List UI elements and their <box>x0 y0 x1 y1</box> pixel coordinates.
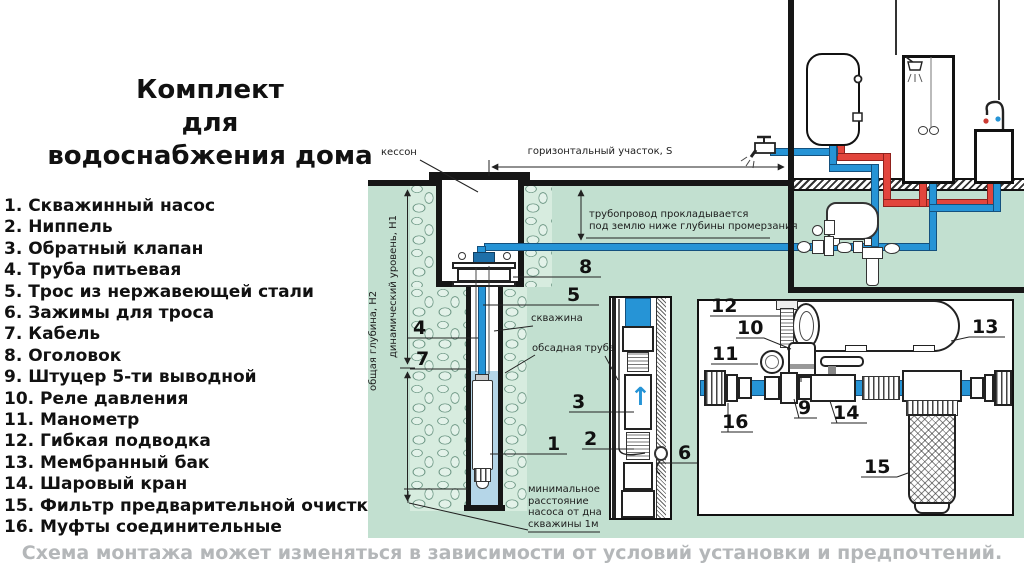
tank-foot <box>913 345 935 352</box>
sink-cabinet <box>974 129 1014 184</box>
legend-item: 1. Скважинный насос <box>4 196 380 217</box>
horizontal-section-label: горизонтальный участок, S <box>505 146 695 158</box>
legend-item: 14. Шаровый кран <box>4 474 380 495</box>
callout-8: 8 <box>579 258 592 276</box>
legend-item: 5. Трос из нержавеющей стали <box>4 282 380 303</box>
legend-item: 8. Оголовок <box>4 346 380 367</box>
callout-1: 1 <box>547 435 560 453</box>
caisson-lid <box>429 172 530 180</box>
min-distance-note: минимальное расстояние насоса от дна скв… <box>528 484 602 530</box>
flow-direction-arrow: ↑ <box>630 382 646 411</box>
total-depth-label: общая глубина, H2 <box>368 243 379 438</box>
callout-14: 14 <box>833 404 859 422</box>
parts-legend: 1. Скважинный насос 2. Ниппель 3. Обратн… <box>4 196 380 539</box>
small-coupling <box>797 241 811 253</box>
partition-above-sink <box>998 0 1000 100</box>
casing-wall-left <box>466 287 471 511</box>
detail-pump-head <box>623 462 653 490</box>
shower-connector-hot <box>918 126 928 135</box>
callout-16: 16 <box>722 413 748 431</box>
detail-adapter <box>627 352 649 372</box>
callout-6: 6 <box>678 444 691 462</box>
legend-item: 16. Муфты соединительные <box>4 517 380 538</box>
water-supply-scheme: Комплект для водоснабжения дома 1. Скваж… <box>0 0 1024 576</box>
detail-cable-clamp <box>654 446 668 461</box>
small-valve <box>837 242 852 253</box>
callout-5: 5 <box>567 286 580 304</box>
corrugated-adapter <box>862 376 900 400</box>
pressure-relay <box>788 342 816 376</box>
pump-intake-grid <box>474 468 491 482</box>
dynamic-level-label: динамический уровень, H1 <box>388 192 399 382</box>
ground-line <box>368 180 789 186</box>
frost-depth-note: трубопровод прокладывается под землю ниж… <box>589 209 798 233</box>
cold-pipe-basement-run <box>929 204 1001 212</box>
legend-item: 4. Труба питьевая <box>4 260 380 281</box>
wellhead-body <box>457 268 511 282</box>
partition-above-shower <box>895 0 897 55</box>
callout-11: 11 <box>712 345 738 363</box>
cold-pipe-to-faucet <box>770 148 838 156</box>
gravel-right-lower <box>503 287 527 511</box>
tank-foot <box>845 345 867 352</box>
coupling-right-nut <box>994 370 1012 406</box>
small-five-way <box>824 236 834 256</box>
callout-4: 4 <box>413 319 426 337</box>
coupling-left-ring <box>726 374 738 402</box>
casing-label: обсадная труба <box>532 343 615 355</box>
shower-cabin <box>902 55 955 184</box>
gravel-right-upper <box>524 183 552 287</box>
callout-10: 10 <box>737 319 763 337</box>
callout-15: 15 <box>864 458 890 476</box>
wellhead-bottom-flange <box>452 281 516 287</box>
filter-bowl <box>908 414 956 506</box>
gravel-left-upper <box>410 183 437 287</box>
small-gauge <box>812 225 823 236</box>
legend-item: 6. Зажимы для троса <box>4 303 380 324</box>
drinking-pipe <box>478 286 486 380</box>
small-coupling <box>884 243 900 254</box>
basement-floor <box>788 287 1024 293</box>
small-filter-bowl <box>866 258 879 286</box>
caisson-wall-left <box>436 180 442 287</box>
tank-flange-inner <box>799 311 814 341</box>
coupling-left-cone <box>738 377 752 399</box>
wellhead-eye-left <box>458 252 466 260</box>
legend-item: 10. Реле давления <box>4 389 380 410</box>
legend-item: 9. Штуцер 5-ти выводной <box>4 367 380 388</box>
callout-3: 3 <box>572 393 585 411</box>
coupling-right-ring <box>984 374 994 402</box>
legend-item: 13. Мембранный бак <box>4 453 380 474</box>
detail-casing-left <box>612 298 616 518</box>
caisson-label: кессон <box>381 147 417 159</box>
legend-item: 7. Кабель <box>4 324 380 345</box>
caisson-wall-right <box>518 180 524 287</box>
detail-nipple <box>626 432 650 460</box>
wellhead-eye-right <box>503 252 511 260</box>
legend-item: 3. Обратный клапан <box>4 239 380 260</box>
detail-pump-body <box>621 490 655 518</box>
five-way-left <box>764 376 780 400</box>
filter-head <box>902 370 962 402</box>
shower-connector-cold <box>929 126 939 135</box>
casing-wall-right <box>498 287 503 511</box>
callout-9: 9 <box>798 399 811 417</box>
coupling-right-cone <box>970 377 984 399</box>
callout-12: 12 <box>711 297 737 315</box>
well-pump-body <box>472 380 493 470</box>
water-heater <box>806 53 860 146</box>
coupling-left-nut <box>704 370 726 406</box>
ball-valve-body <box>810 374 856 402</box>
footer-note: Схема монтажа может изменяться в зависим… <box>0 542 1024 564</box>
legend-item: 2. Ниппель <box>4 217 380 238</box>
five-way-body <box>780 372 798 404</box>
legend-item: 15. Фильтр предварительной очистки <box>4 496 380 517</box>
callout-2: 2 <box>584 430 597 448</box>
well-bottom <box>464 505 505 511</box>
gauge-dial <box>765 355 779 369</box>
small-fitting <box>812 240 824 254</box>
small-relay <box>824 220 835 235</box>
borehole-label: скважина <box>531 313 583 325</box>
ball-valve-handle <box>820 356 864 367</box>
legend-item: 11. Манометр <box>4 410 380 431</box>
pressure-relay-band <box>790 364 814 369</box>
detail-casing-right <box>656 298 666 518</box>
sink-faucet-icon <box>983 102 1003 129</box>
house-wall <box>788 0 794 293</box>
filter-bottom-cap <box>914 502 950 514</box>
page-title: Комплект для водоснабжения дома <box>0 74 420 173</box>
small-tank-foot <box>864 238 872 246</box>
callout-7: 7 <box>416 350 429 368</box>
detail-coupling <box>622 326 654 352</box>
legend-item: 12. Гибкая подводка <box>4 431 380 452</box>
callout-13: 13 <box>972 318 998 336</box>
detail-drinking-pipe <box>625 298 651 328</box>
